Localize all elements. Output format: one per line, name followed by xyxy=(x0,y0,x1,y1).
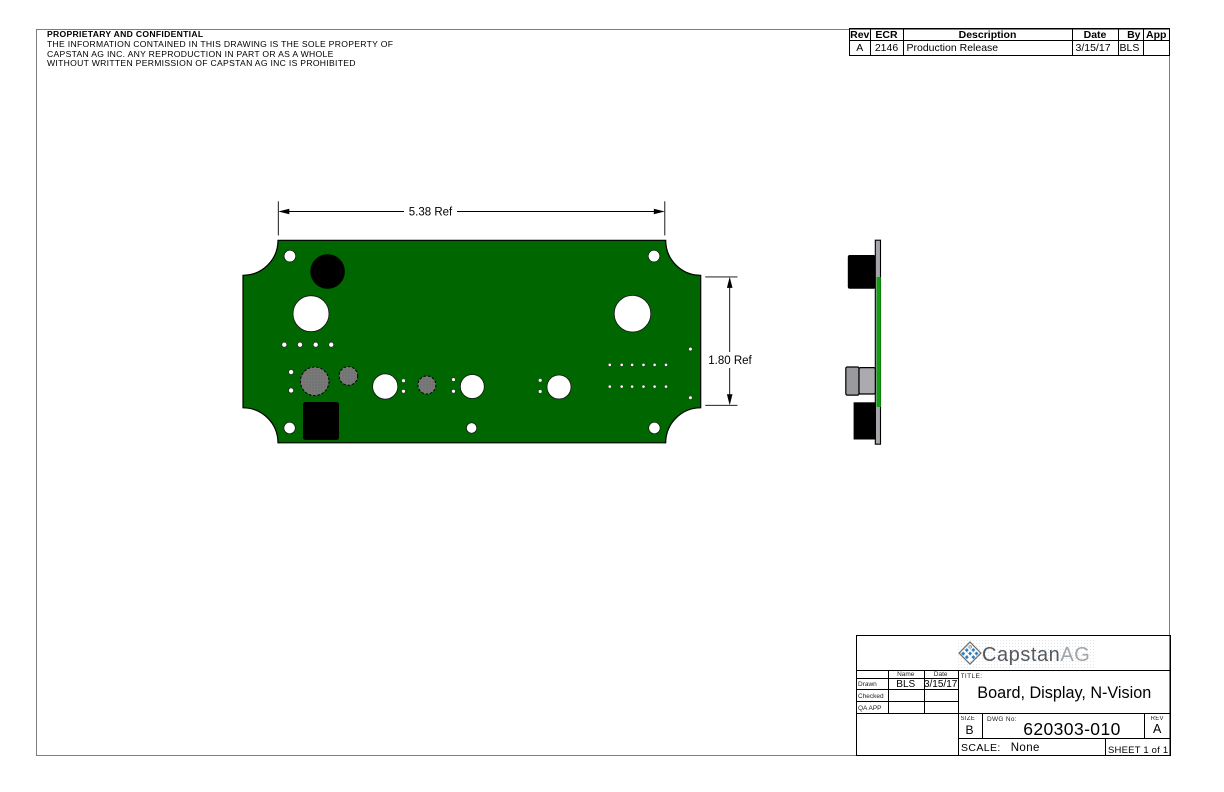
svg-text:1.80 Ref: 1.80 Ref xyxy=(708,355,752,367)
svg-text:5.38 Ref: 5.38 Ref xyxy=(409,207,453,219)
